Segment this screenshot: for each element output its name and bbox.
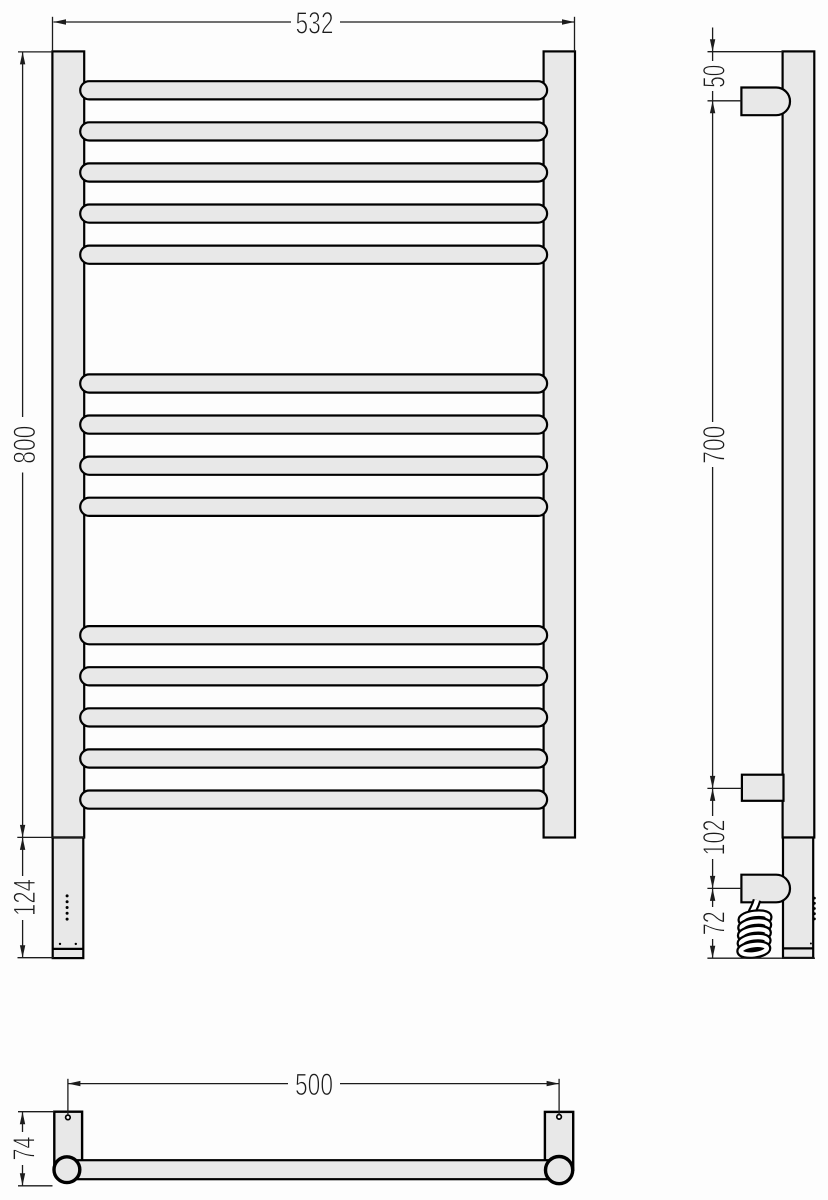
svg-text:700: 700 [696,426,731,464]
svg-text:800: 800 [7,426,42,464]
svg-text:74: 74 [7,1137,42,1161]
svg-text:500: 500 [295,1067,333,1102]
svg-text:50: 50 [696,65,731,88]
svg-text:72: 72 [696,911,731,935]
svg-text:124: 124 [7,879,42,916]
svg-text:102: 102 [696,820,731,856]
svg-text:532: 532 [296,6,334,41]
